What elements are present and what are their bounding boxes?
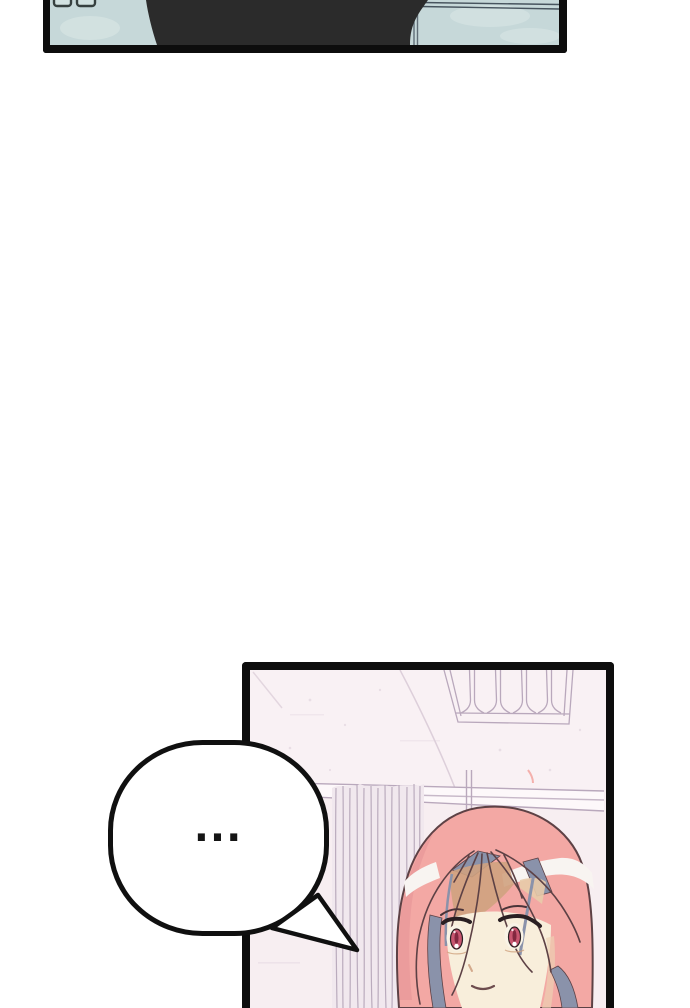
dark-silhouette [146,0,428,45]
speech-bubble-text: ... [163,808,273,848]
webtoon-page-viewer[interactable]: { "viewer": { "background": "#ffffff", "… [0,0,690,1000]
window-handle-right [77,0,95,6]
comic-panel-top [43,0,567,53]
window-handle-left [54,0,71,6]
top-panel-art [50,0,559,45]
character-face [446,912,551,1008]
